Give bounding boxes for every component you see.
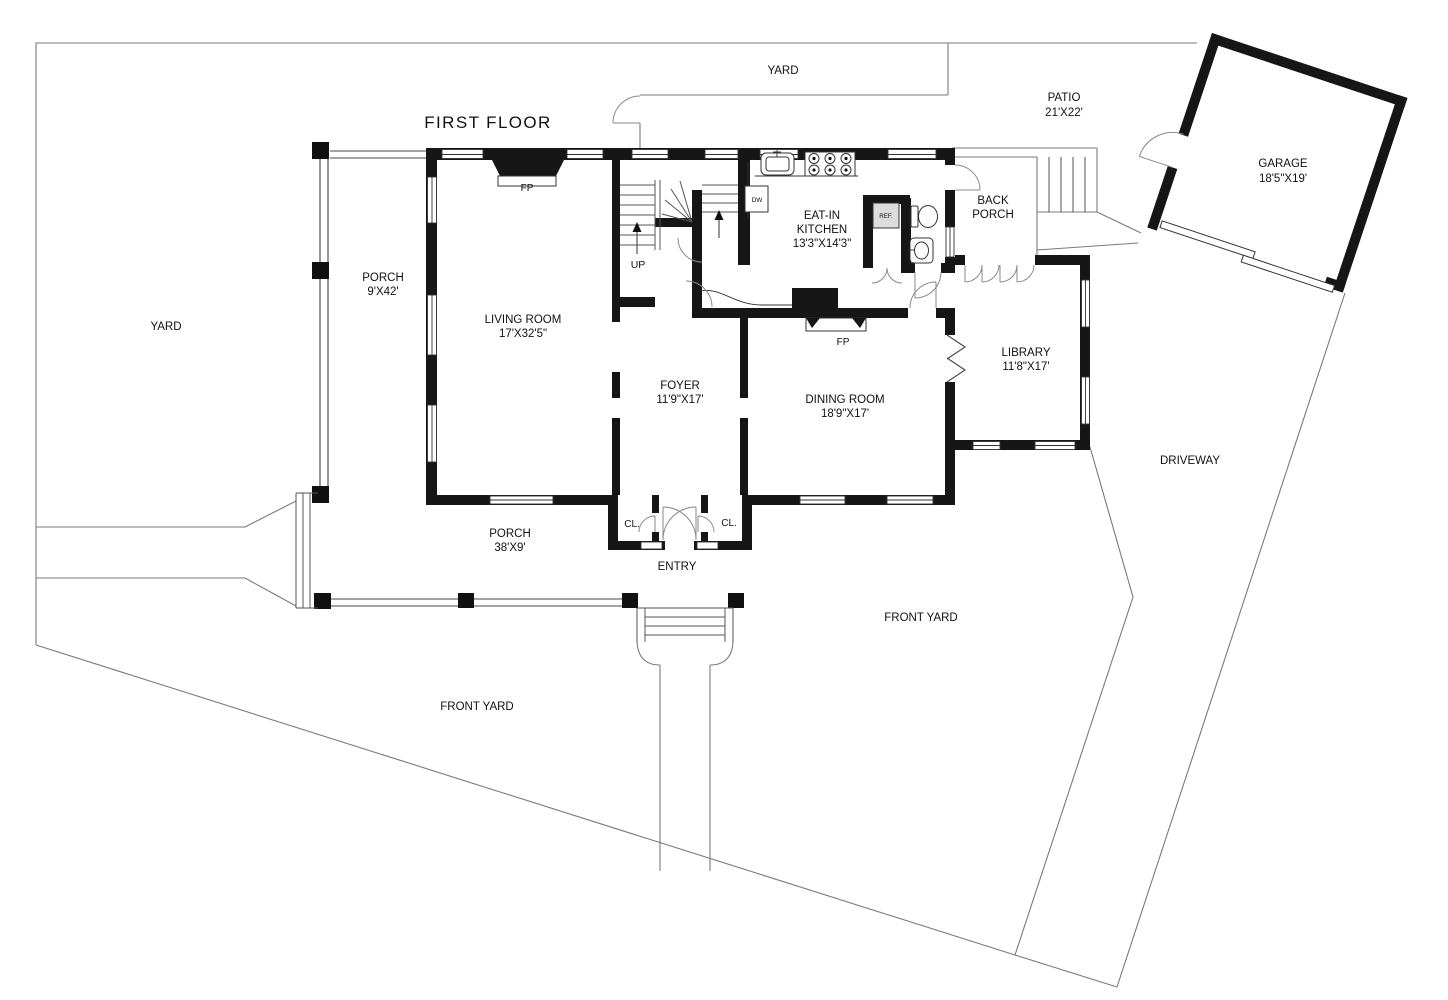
foyer-label: FOYER11'9"X17'	[656, 380, 703, 406]
library-label: LIBRARY11'8"X17'	[1001, 347, 1050, 373]
entry-label: ENTRY	[658, 561, 697, 573]
patio-label: PATIO21'X22'	[1045, 92, 1083, 119]
dining-room-label: DINING ROOM18'9"X17'	[805, 394, 884, 420]
bathroom-sink-icon	[910, 238, 933, 263]
toilet-icon	[911, 206, 938, 228]
bathroom-door-icon	[915, 272, 941, 298]
front-walkway	[637, 642, 733, 871]
interior-walls	[612, 148, 955, 495]
driveway-label: DRIVEWAY	[1160, 455, 1220, 467]
dining-hall-door-icon	[910, 282, 936, 308]
dining-bay-chevrons	[947, 335, 965, 382]
up-arrow-head	[633, 222, 642, 232]
garage-label: GARAGE18'5"X19'	[1258, 158, 1308, 185]
title-label: FIRST FLOOR	[424, 113, 552, 132]
winder-treads	[662, 181, 692, 222]
up-label: UP	[631, 259, 646, 271]
yard-top-label: YARD	[767, 65, 798, 77]
powder-room-fixtures	[910, 206, 938, 264]
entry-steps	[637, 608, 733, 642]
front-yard-left-label: FRONT YARD	[440, 701, 513, 713]
refrigerator-label: REF.	[879, 213, 893, 220]
garage-entry-door-icon	[1139, 123, 1183, 167]
closet-left-label: CL.	[624, 519, 640, 530]
yard-fence	[613, 43, 948, 152]
porch-railing	[320, 151, 637, 606]
floor-plan-drawing: FIRST FLOORYARDPATIO21'X22'GARAGE18'5"X1…	[0, 0, 1448, 1000]
garage-path	[1037, 212, 1141, 250]
property-boundary	[36, 43, 1345, 987]
fp-living-label: FP	[521, 183, 534, 194]
porch-side-label: PORCH9'X42'	[362, 272, 404, 298]
garage-door-panel-2	[1241, 255, 1334, 292]
stove-icon	[805, 152, 855, 176]
side-walkway	[36, 501, 296, 606]
living-room-label: LIVING ROOM17'X32'5"	[485, 314, 562, 340]
closet-door-icons	[639, 516, 714, 532]
closet-right-label: CL.	[721, 518, 737, 529]
main-staircase	[620, 180, 738, 254]
labels-layer: FIRST FLOORYARDPATIO21'X22'GARAGE18'5"X1…	[150, 65, 1307, 713]
kitchen-backdoor-icon	[955, 165, 980, 190]
kitchen-sink-icon	[761, 150, 794, 175]
porch-front-label: PORCH38'X9'	[489, 528, 531, 554]
yard-left-label: YARD	[150, 321, 181, 333]
yard-gate-door-icon	[613, 96, 640, 123]
eat-in-kitchen-label: EAT-INKITCHEN13'3"X14'3"	[793, 210, 852, 250]
pantry-door-icons	[872, 268, 902, 283]
front-yard-right-label: FRONT YARD	[884, 612, 957, 624]
fp-dining-label: FP	[837, 337, 850, 348]
dishwasher-label: DW	[752, 197, 764, 204]
garage-door-panel-1	[1160, 221, 1255, 259]
front-door-icons	[663, 507, 696, 540]
floor-plan-page: FIRST FLOORYARDPATIO21'X22'GARAGE18'5"X1…	[0, 0, 1448, 1000]
back-porch-label: BACKPORCH	[972, 195, 1014, 221]
back-porch-stairs	[1049, 157, 1085, 212]
fireplace-living	[486, 148, 570, 186]
porch-side-steps	[296, 493, 318, 608]
library-french-door-icons	[965, 265, 1034, 282]
